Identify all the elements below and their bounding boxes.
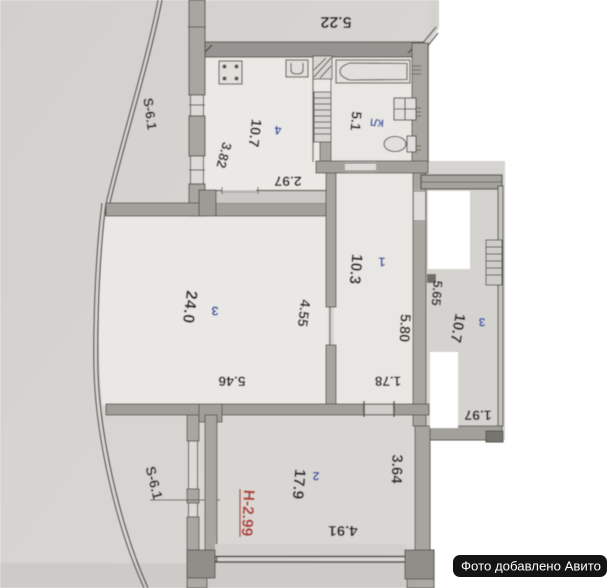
svg-text:3.64: 3.64 bbox=[388, 454, 406, 484]
svg-text:Фото добавлено Авито: Фото добавлено Авито bbox=[461, 558, 601, 573]
svg-text:10.3: 10.3 bbox=[346, 253, 366, 285]
svg-text:17.9: 17.9 bbox=[289, 468, 309, 500]
svg-text:1.78: 1.78 bbox=[374, 373, 401, 388]
svg-text:4.91: 4.91 bbox=[328, 522, 357, 539]
svg-text:2.97: 2.97 bbox=[274, 173, 301, 189]
svg-text:4.55: 4.55 bbox=[295, 299, 314, 328]
svg-text:5.1: 5.1 bbox=[347, 111, 365, 132]
svg-text:Н-2.99: Н-2.99 bbox=[238, 489, 257, 537]
svg-text:4: 4 bbox=[274, 123, 281, 137]
svg-text:5.22: 5.22 bbox=[320, 13, 351, 30]
svg-text:5.46: 5.46 bbox=[218, 373, 245, 389]
svg-text:1.97: 1.97 bbox=[464, 407, 491, 423]
svg-text:3: 3 bbox=[211, 304, 218, 319]
svg-text:5.65: 5.65 bbox=[428, 280, 445, 307]
svg-text:1: 1 bbox=[378, 255, 385, 269]
svg-text:2: 2 bbox=[312, 469, 319, 483]
svg-text:3: 3 bbox=[478, 315, 485, 329]
svg-text:КЛ: КЛ bbox=[370, 116, 385, 129]
svg-text:5.80: 5.80 bbox=[395, 313, 412, 342]
svg-text:10.7: 10.7 bbox=[245, 118, 264, 148]
